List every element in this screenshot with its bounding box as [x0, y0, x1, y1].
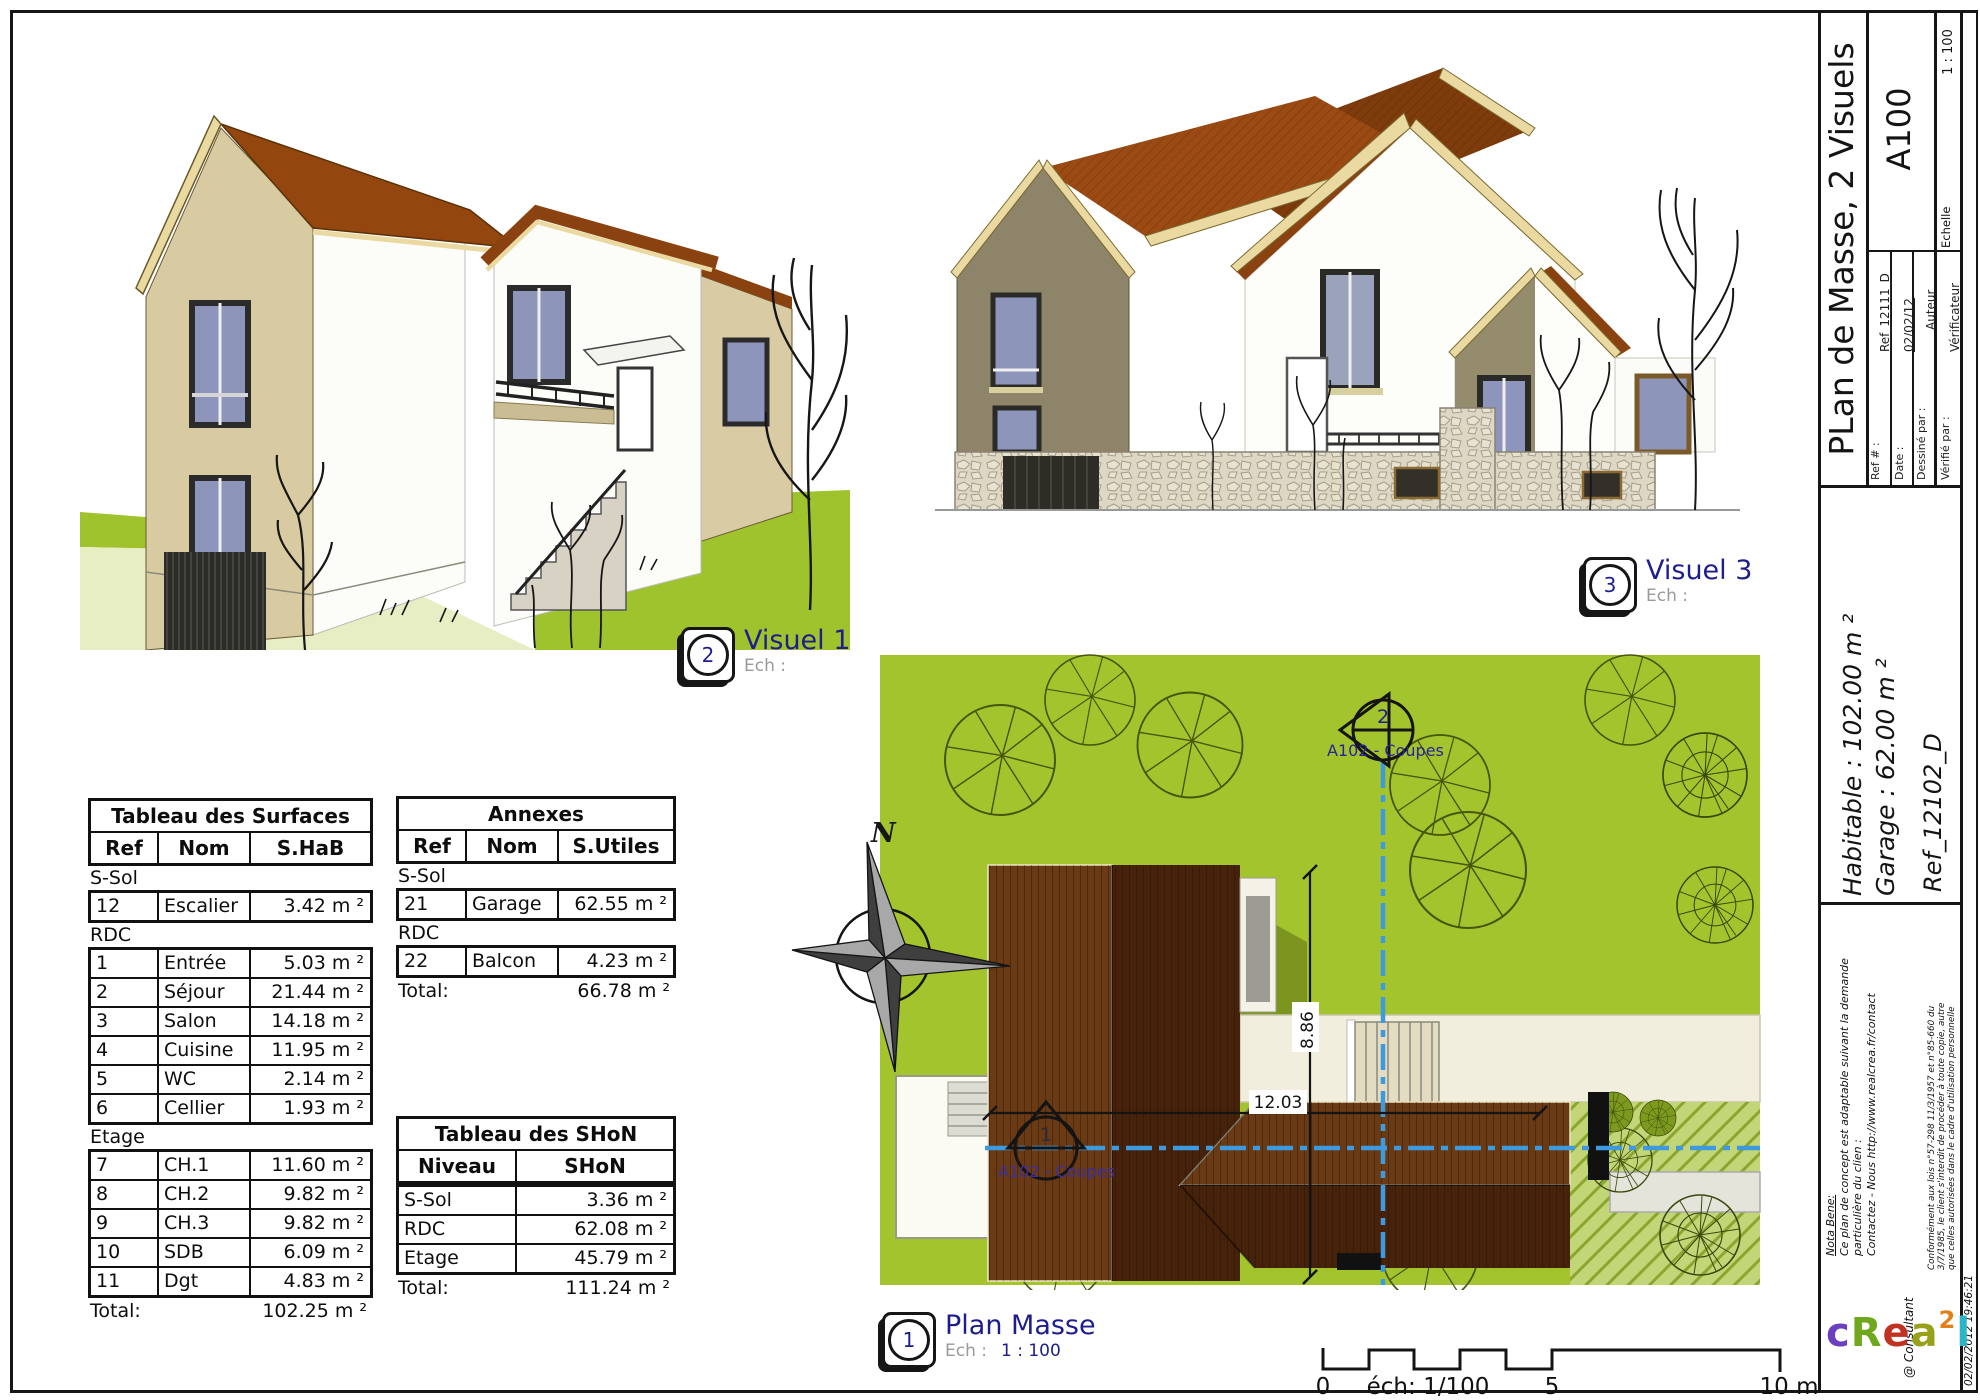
- plan-label: 1 Plan Masse Ech :1 : 100: [882, 1312, 1096, 1368]
- scale-caption: éch: 1/100: [1367, 1374, 1490, 1400]
- scale-five: 5: [1545, 1374, 1560, 1400]
- table-row: 6Cellier1.93 m ²: [91, 1093, 370, 1122]
- table-row: 21Garage62.55 m ²: [399, 891, 673, 918]
- drawn-by-value: Auteur: [1924, 250, 1938, 330]
- table-row: 12 Escalier 3.42 m ²: [91, 893, 370, 920]
- scale-ten: 10 m: [1760, 1374, 1819, 1400]
- table-row: 5WC2.14 m ²: [91, 1064, 370, 1093]
- dim-value: 8.86: [1298, 1011, 1318, 1049]
- plan-title: Plan Masse: [945, 1312, 1096, 1340]
- window: [995, 408, 1039, 452]
- plan-reference: Ref_12102_D: [1919, 682, 1947, 892]
- checked-by-value: Vérificateur: [1948, 248, 1962, 352]
- date-value: 02/02/12: [1902, 252, 1916, 352]
- basement-window: [1395, 468, 1439, 498]
- table-total: Total: 102.25 m ²: [88, 1298, 373, 1325]
- table-row: Etage45.79 m ²: [399, 1243, 673, 1272]
- habitable-area: Habitable : 102.00 m ²: [1838, 548, 1867, 896]
- table-title: Annexes: [399, 799, 673, 831]
- visual1-label: 2 Visuel 1 Ech :: [681, 627, 850, 683]
- table-row: S-Sol3.36 m ²: [399, 1187, 673, 1214]
- window: [989, 295, 1043, 393]
- dim-value: 12.03: [1254, 1093, 1303, 1113]
- north-label: N: [870, 818, 897, 849]
- window: [1637, 376, 1689, 452]
- visual3-rendering: [895, 40, 1765, 550]
- col-header: Ref: [91, 833, 159, 863]
- border-top: [10, 10, 1978, 13]
- table-title: Tableau des SHoN: [399, 1119, 673, 1151]
- table-row: RDC62.08 m ²: [399, 1214, 673, 1243]
- scale-value: 1 : 100: [1001, 1341, 1061, 1361]
- window: [192, 303, 248, 425]
- col-header: Nom: [159, 833, 251, 863]
- rear-wing: [699, 263, 792, 542]
- garage-area: Garage : 62.00 m ²: [1871, 548, 1900, 896]
- table-row: 8CH.29.82 m ²: [91, 1179, 370, 1208]
- dim-horizontal-label: 12.03: [1249, 1090, 1307, 1114]
- table-header: Ref Nom S.Utiles: [399, 831, 673, 861]
- visual3-label: 3 Visuel 3 Ech :: [1583, 557, 1752, 613]
- col-header: Ref: [399, 831, 467, 861]
- table-row: 4Cuisine11.95 m ²: [91, 1035, 370, 1064]
- table-row: 2Séjour21.44 m ²: [91, 977, 370, 1006]
- table-shon: Tableau des SHoN Niveau SHoN S-Sol3.36 m…: [396, 1116, 676, 1302]
- tb-line: [1820, 485, 1962, 488]
- west-terrace: [896, 1076, 992, 1238]
- badge-number: 3: [1589, 564, 1631, 606]
- tb-line: [1934, 10, 1937, 485]
- table-row: 22Balcon4.23 m ²: [399, 948, 673, 975]
- date-label: Date :: [1893, 388, 1906, 480]
- table-total: Total: 111.24 m ²: [396, 1275, 676, 1302]
- nota-bene-line: particulière du clien :: [1851, 1038, 1865, 1256]
- col-header: Nom: [467, 831, 559, 861]
- border-right-main: [1960, 10, 1963, 1390]
- car: [1337, 1253, 1381, 1270]
- nota-bene-line: Contactez - Nous http://www.realcrea.fr/…: [1865, 1038, 1879, 1256]
- door: [618, 368, 652, 450]
- col-header: S.HaB: [251, 833, 370, 863]
- table-surfaces: Tableau des Surfaces Ref Nom S.HaB S-Sol…: [88, 798, 373, 1325]
- visual1-title: Visuel 1: [744, 627, 850, 655]
- group-label: RDC: [88, 923, 373, 947]
- titleblock-divider: [1818, 10, 1821, 1390]
- marker-label: A102 - Coupes: [1327, 741, 1444, 760]
- dim-vertical-label: 8.86: [1292, 1002, 1319, 1052]
- table-total: Total: 66.78 m ²: [396, 978, 676, 1005]
- crea-logo: cRea2l: [1826, 1306, 1966, 1356]
- table-header: Ref Nom S.HaB: [91, 833, 370, 863]
- scale-bar-line: [1323, 1348, 1780, 1372]
- visual3-badge-icon: 3: [1583, 557, 1637, 613]
- ech-label: Ech :: [945, 1341, 987, 1361]
- visual1-rendering: [80, 50, 850, 650]
- sheet-code: A100: [1880, 16, 1918, 242]
- table-annexes: Annexes Ref Nom S.Utiles S-Sol 21Garage6…: [396, 796, 676, 1005]
- house-left: [136, 116, 518, 650]
- ref-label: Ref # :: [1869, 388, 1882, 480]
- nota-bene-line: Ce plan de concept est adaptable suivant…: [1838, 1038, 1852, 1256]
- scale-zero: 0: [1316, 1374, 1331, 1400]
- col-header: S.Utiles: [559, 831, 673, 861]
- table-title: Tableau des Surfaces: [91, 801, 370, 833]
- door: [1287, 358, 1327, 452]
- checked-by-label: Vérifié par :: [1939, 388, 1952, 480]
- scale-label: Echelle: [1939, 194, 1953, 248]
- basement-grill: [164, 552, 266, 650]
- group-label: Etage: [88, 1125, 373, 1149]
- marker-label: A102 - Coupes: [998, 1162, 1115, 1181]
- legal-notice: Conformément aux lois n°57-298 11/3/1957…: [1928, 1038, 1957, 1270]
- scale-value: 1 : 100: [1941, 14, 1956, 90]
- legal-line: que celles autorisées dans le cadre d'ut…: [1948, 1038, 1958, 1270]
- group-label: S-Sol: [88, 866, 373, 890]
- table-row: 1Entrée5.03 m ²: [91, 950, 370, 977]
- table-row: 10SDB6.09 m ²: [91, 1237, 370, 1266]
- table-row: 11Dgt4.83 m ²: [91, 1266, 370, 1295]
- house-front: [485, 212, 717, 626]
- site-plan: 8.86 12.03 2 A102 - Coupes 1 A102 - Coup…: [755, 650, 1765, 1290]
- drawn-by-label: Dessiné par :: [1915, 388, 1928, 480]
- group-label: S-Sol: [396, 864, 676, 888]
- nota-bene: Nota Bene: Ce plan de concept est adapta…: [1824, 1038, 1878, 1256]
- window: [510, 288, 568, 382]
- col-header: Niveau: [399, 1151, 517, 1181]
- group-label: RDC: [396, 921, 676, 945]
- border-right-outer: [1976, 10, 1978, 1393]
- sheet-title: PLan de Masse, 2 Visuels: [1822, 15, 1861, 483]
- nota-bene-title: Nota Bene:: [1824, 1038, 1838, 1256]
- plan-badge-icon: 1: [882, 1312, 936, 1368]
- badge-number: 1: [888, 1319, 930, 1361]
- col-header: SHoN: [517, 1151, 673, 1181]
- ref-value: Ref_12111_D: [1878, 252, 1892, 352]
- entry-stairs: [1347, 1020, 1439, 1102]
- visual3-title: Visuel 3: [1646, 557, 1752, 585]
- visual1-badge-icon: 2: [681, 627, 735, 683]
- badge-number: 2: [687, 634, 729, 676]
- table-row: 7CH.111.60 m ²: [91, 1152, 370, 1179]
- table-row: 3Salon14.18 m ²: [91, 1006, 370, 1035]
- border-left: [10, 10, 13, 1393]
- scale-bar: 0 éch: 1/100 5 10 m: [1295, 1336, 1825, 1400]
- visual1-scale: Ech :: [744, 655, 850, 677]
- marker-number: 2: [1377, 706, 1389, 728]
- table-row: 9CH.39.82 m ²: [91, 1208, 370, 1237]
- marker-number: 1: [1040, 1124, 1052, 1146]
- drawing-sheet: 8.86 12.03 2 A102 - Coupes 1 A102 - Coup…: [0, 0, 1980, 1400]
- car: [1588, 1092, 1609, 1180]
- tb-line: [1820, 902, 1962, 905]
- visual3-scale: Ech :: [1646, 585, 1752, 607]
- plan-scale: Ech :1 : 100: [945, 1340, 1096, 1362]
- table-header: Niveau SHoN: [399, 1151, 673, 1181]
- basement-window: [1583, 472, 1621, 498]
